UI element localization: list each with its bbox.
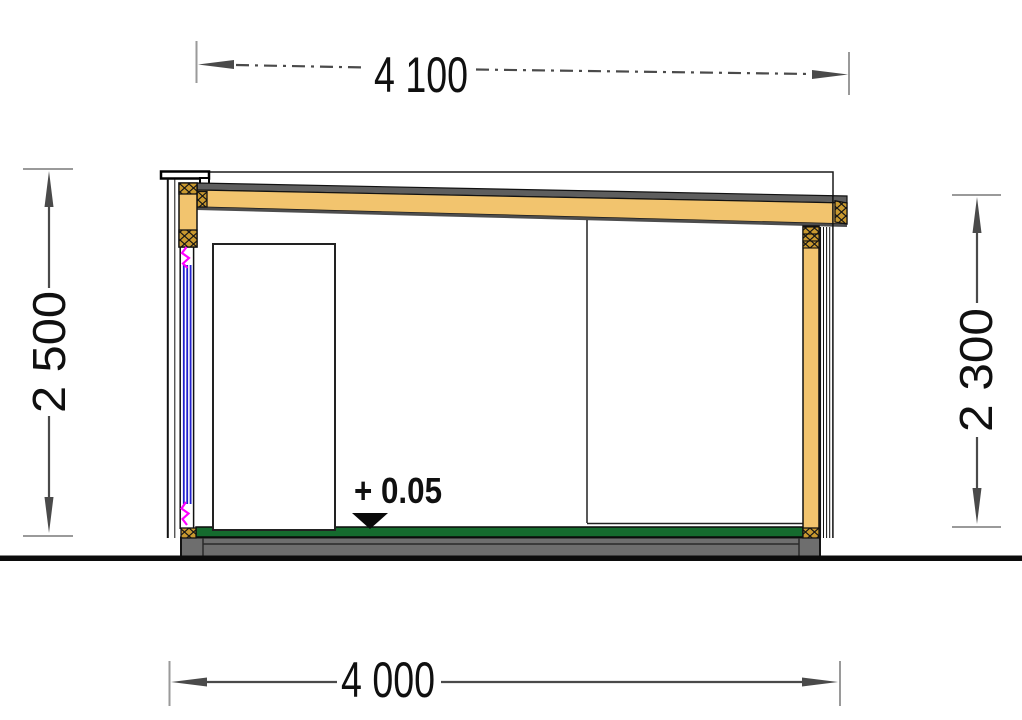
dimension-top-label: 4 100 bbox=[374, 47, 468, 103]
arrow-down-icon bbox=[45, 497, 54, 533]
right-wall-cladding-lines bbox=[820, 196, 833, 538]
dimension-bottom: 4 000 bbox=[170, 652, 841, 708]
right-bottom-plate bbox=[803, 528, 819, 538]
left-bottom-plate bbox=[181, 528, 196, 538]
drawing-canvas: + 0.05 4 100 4 000 2 500 bbox=[0, 0, 1022, 720]
arrow-right-icon bbox=[812, 70, 848, 79]
arrow-left-icon bbox=[198, 60, 234, 69]
left-wall-top-post bbox=[179, 183, 197, 247]
floor-level-marker: + 0.05 bbox=[352, 470, 442, 529]
arrow-right-icon bbox=[802, 678, 838, 687]
dimension-left: 2 500 bbox=[23, 169, 75, 536]
arrow-left-icon bbox=[171, 678, 207, 687]
beam-right-end-section bbox=[835, 201, 847, 224]
left-window-glazing bbox=[184, 265, 191, 504]
dimension-right-label: 2 300 bbox=[950, 308, 1002, 432]
dimension-bottom-label: 4 000 bbox=[341, 652, 435, 708]
arrow-down-icon bbox=[973, 488, 982, 524]
beam-left-end-section bbox=[197, 192, 207, 208]
left-wall-cladding-lines bbox=[168, 179, 175, 538]
arrow-up-icon bbox=[973, 197, 982, 233]
ground-line bbox=[0, 556, 1022, 562]
floor-level-label: + 0.05 bbox=[354, 470, 442, 511]
dimension-top: 4 100 bbox=[197, 41, 850, 103]
dimension-left-label: 2 500 bbox=[23, 291, 75, 413]
right-wall-post bbox=[803, 226, 819, 530]
interior-door-panel bbox=[213, 244, 335, 530]
elevation-drawing: + 0.05 4 100 4 000 2 500 bbox=[0, 0, 1022, 720]
dimension-right: 2 300 bbox=[950, 195, 1002, 527]
arrow-up-icon bbox=[45, 171, 54, 207]
foundation-slab bbox=[181, 538, 820, 558]
